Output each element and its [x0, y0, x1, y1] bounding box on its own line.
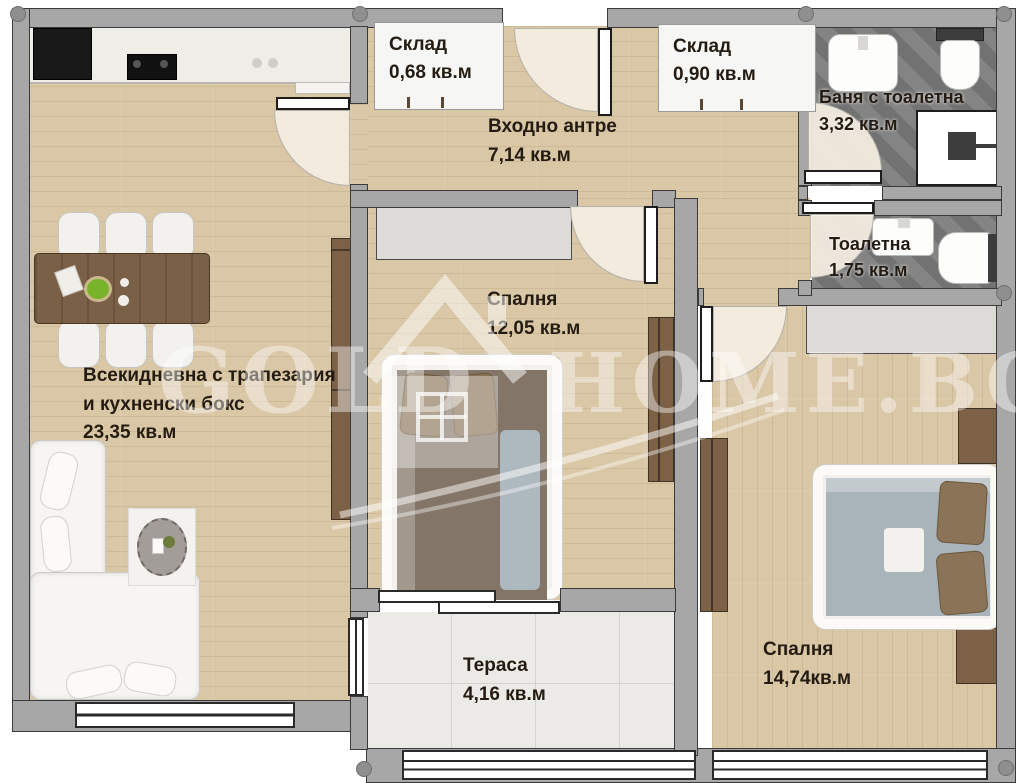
living-window	[75, 702, 295, 728]
bathroom-area: 3,32 кв.м	[819, 111, 964, 138]
bathroom-bottom-wall	[882, 186, 1002, 200]
bedroom2-side-wardrobe	[700, 438, 728, 612]
living-entry-wall	[350, 184, 368, 618]
central-vertical-wall	[674, 198, 698, 756]
bedroom2-label: Спалня 14,74кв.м	[763, 636, 851, 693]
dining-chair	[152, 212, 192, 258]
living-room-name-line1: Всекидневна с трапезария	[83, 362, 336, 391]
storage-small-name: Склад	[389, 31, 493, 59]
closet-door-tick	[740, 99, 743, 110]
bathroom-bottom-wall	[798, 186, 808, 200]
bedroom1-bed-throw	[500, 430, 540, 590]
cup-icon	[118, 295, 129, 306]
bedroom1-pillow	[449, 372, 498, 438]
terrace-sliding-door	[438, 601, 560, 614]
living-door-leaf	[276, 97, 350, 110]
bedroom1-name: Спалня	[487, 286, 580, 315]
wc-door-leaf	[802, 202, 874, 214]
wc-toilet	[938, 232, 992, 284]
wall-joint-dot	[996, 285, 1012, 301]
living-room-name-line2: и кухненски бокс	[83, 391, 336, 420]
wall-joint-dot	[356, 761, 372, 777]
burner-icon	[133, 60, 141, 68]
bedroom1-wardrobe	[376, 204, 572, 260]
entry-hall-label: Входно антре 7,14 кв.м	[488, 113, 617, 170]
living-terrace-wall	[350, 696, 368, 750]
storage-large-name: Склад	[673, 33, 805, 61]
terrace-label: Тераса 4,16 кв.м	[463, 652, 546, 709]
bedroom2-nightstand	[958, 408, 1000, 464]
wall-joint-dot	[798, 6, 814, 22]
bedroom1-pillow	[399, 372, 449, 438]
bedroom1-label: Спалня 12,05 кв.м	[487, 286, 580, 343]
terrace-railing	[402, 750, 696, 780]
bathroom-name: Баня с тоалетна	[819, 84, 964, 111]
bedroom2-bed-fold	[884, 528, 924, 572]
plant-icon	[163, 536, 175, 548]
bedroom1-side-wardrobe	[648, 317, 674, 482]
bedroom2-window	[712, 750, 988, 780]
bathroom-door-leaf	[804, 170, 882, 184]
living-room-area: 23,35 кв.м	[83, 419, 336, 448]
terrace-side-window	[348, 618, 364, 696]
kitchen-sink-icon	[252, 58, 262, 68]
bedroom1-door-leaf	[644, 206, 658, 284]
bedroom2-wardrobe	[806, 300, 1000, 354]
entry-hall-area: 7,14 кв.м	[488, 142, 617, 171]
wc-area: 1,75 кв.м	[829, 257, 911, 283]
dining-chair	[105, 212, 145, 258]
floor-plan: Склад 0,68 кв.м Склад 0,90 кв.м Всекидне…	[0, 0, 1024, 783]
bedroom2-name: Спалня	[763, 636, 851, 665]
wc-west-wall	[798, 280, 812, 296]
living-room-label: Всекидневна с трапезария и кухненски бок…	[83, 362, 336, 448]
kitchen-sink-icon	[268, 58, 278, 68]
wc-tap-icon	[898, 218, 910, 228]
storage-large-box: Склад 0,90 кв.м	[658, 24, 816, 112]
closet-door-tick	[700, 99, 703, 110]
entry-bedroom1-wall	[350, 190, 578, 208]
wc-label: Тоалетна 1,75 кв.м	[829, 231, 911, 283]
dining-chair	[58, 320, 98, 366]
storage-small-area: 0,68 кв.м	[389, 59, 493, 87]
outer-left-wall	[12, 8, 30, 732]
kitchen-dark-cabinet	[33, 28, 92, 80]
bedroom2-pillow	[935, 550, 988, 616]
dining-chair	[58, 212, 98, 258]
bathroom-label: Баня с тоалетна 3,32 кв.м	[819, 84, 964, 138]
dining-chair	[105, 320, 145, 366]
storage-large-area: 0,90 кв.м	[673, 61, 805, 89]
bedroom2-pillow	[936, 480, 988, 545]
bedroom2-area: 14,74кв.м	[763, 665, 851, 694]
bath-wc-wall	[874, 200, 1002, 216]
wall-joint-dot	[996, 6, 1012, 22]
bedroom2-top-wall	[698, 288, 704, 306]
outer-right-wall	[996, 8, 1016, 783]
bathroom-toilet	[940, 40, 980, 90]
kitchen-shelf	[295, 82, 350, 94]
terrace-area: 4,16 кв.м	[463, 681, 546, 710]
wc-name: Тоалетна	[829, 231, 911, 257]
closet-door-tick	[441, 97, 444, 108]
bedroom1-area: 12,05 кв.м	[487, 315, 580, 344]
sofa-pillow	[39, 515, 73, 574]
storage-small-box: Склад 0,68 кв.м	[374, 22, 504, 110]
burner-icon	[160, 60, 168, 68]
wall-joint-dot	[10, 6, 26, 22]
wall-joint-dot	[352, 6, 368, 22]
front-door-leaf	[598, 28, 612, 116]
terrace-name: Тераса	[463, 652, 546, 681]
living-doorway-floor	[350, 104, 368, 184]
bedroom1-terrace-wall	[560, 588, 676, 612]
bedroom1-terrace-wall	[350, 588, 380, 612]
wall-joint-dot	[998, 760, 1014, 776]
plate-with-food	[84, 276, 112, 302]
bedroom2-door-leaf	[700, 306, 713, 382]
living-entry-wall	[350, 26, 368, 104]
closet-door-tick	[407, 97, 410, 108]
bedroom2-nightstand	[956, 628, 998, 684]
bathroom-tap-icon	[858, 36, 868, 50]
dining-chair	[152, 320, 192, 366]
cup-icon	[120, 278, 129, 287]
entry-hall-name: Входно антре	[488, 113, 617, 142]
